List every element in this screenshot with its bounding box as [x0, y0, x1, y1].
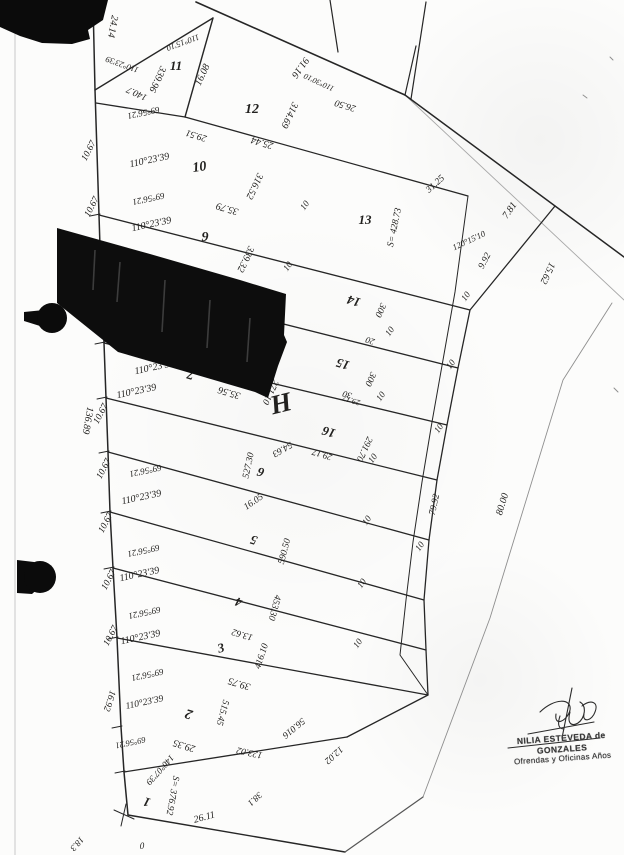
- dimension-label: 300: [362, 369, 378, 387]
- dimension-label: 69°56'21: [127, 543, 161, 560]
- dimension-label: S= 428.73: [386, 207, 404, 248]
- dimension-label: 69°56'21: [127, 105, 161, 122]
- dimension-label: 10.67: [102, 623, 121, 648]
- dimension-label: 527.30: [241, 452, 256, 480]
- dimension-label: 24.14: [105, 14, 120, 38]
- dimension-label: 110°30'10: [302, 71, 335, 93]
- dimension-label: 10: [383, 324, 397, 338]
- lot-3-label: 3: [215, 639, 227, 656]
- boundary-line: [117, 638, 428, 695]
- lot-1-label: 1: [141, 794, 152, 810]
- plat-drawing: 24.14110°23'39339.96110°15'1016.08140.79…: [0, 0, 624, 855]
- dimension-label: 15.62: [538, 261, 557, 286]
- lot-10-label: 10: [192, 159, 208, 176]
- boundary-line: [405, 46, 416, 95]
- punch-hole: [24, 561, 56, 593]
- dimension-label: 80.00: [494, 492, 511, 517]
- dimension-label: 140.7: [124, 83, 149, 102]
- boundary-line: [196, 2, 405, 95]
- dimension-label: 10: [459, 289, 473, 303]
- boundary-line: [405, 95, 624, 300]
- lot-12-label: 12: [245, 102, 259, 117]
- dimension-label: 16.92: [101, 689, 117, 713]
- dimension-label: 13.62: [230, 626, 254, 642]
- dimension-label: 9.92: [477, 251, 494, 271]
- dimension-label: 120°15'10: [451, 228, 488, 252]
- dimension-label: 110°23'39: [103, 54, 139, 75]
- dimension-label: 7.81: [500, 200, 519, 221]
- dimension-label: 316.52: [243, 170, 265, 200]
- lot-11-label: 11: [170, 58, 182, 73]
- dimension-label: 18.3: [68, 835, 86, 854]
- dimension-label: 110°15'10: [164, 32, 200, 53]
- dimension-label: 123.02: [236, 744, 264, 759]
- boundary-line: [610, 57, 613, 60]
- dimension-label: 110°23'39: [120, 628, 162, 647]
- dimension-label: 110°23'39: [129, 151, 171, 170]
- dimension-label: 56.016: [280, 715, 307, 740]
- boundary-line: [583, 95, 587, 98]
- dimension-label: 10: [355, 576, 369, 590]
- dimension-label: 26.11: [192, 809, 216, 825]
- dimension-label: 339.32: [234, 243, 256, 273]
- dimension-label: 16.05: [242, 492, 265, 513]
- lot-13-label: 13: [359, 212, 373, 227]
- dimension-label: 69°56'21: [132, 191, 166, 208]
- dimension-label: 29.17: [311, 447, 334, 463]
- dimension-label: 136.89: [80, 406, 96, 435]
- dimension-label: 590.50: [277, 537, 293, 565]
- dimension-label: 10.67: [97, 510, 116, 535]
- dimension-label: 10.67: [95, 456, 114, 481]
- boundary-line: [400, 196, 468, 695]
- dimension-label: 39.75: [227, 675, 253, 692]
- boundary-line: [185, 117, 468, 196]
- dimension-label: 69°56'21: [128, 605, 162, 622]
- dimension-label: 69°56'21: [131, 667, 165, 684]
- dimension-label: 110°23'39: [119, 565, 161, 584]
- dimension-label: 26.50: [333, 97, 357, 113]
- dimension-label: 69°56'21: [115, 735, 147, 751]
- lot-14-label: 14: [345, 292, 362, 310]
- scan-corner-blob: [0, 0, 108, 44]
- dimension-label: 110°23'39: [121, 488, 163, 507]
- dimension-label: 110°23'39: [125, 693, 165, 712]
- dimension-label: 10: [374, 389, 388, 403]
- boundary-line: [128, 815, 345, 852]
- lot-15-label: 15: [334, 355, 351, 373]
- dimension-label: 314.69: [278, 99, 300, 129]
- dimension-label: 10: [298, 198, 312, 212]
- dimension-label: 10: [351, 636, 365, 650]
- block-H-label: H: [266, 386, 296, 421]
- boundary-line: [345, 797, 423, 852]
- dimension-label: 515.45: [214, 699, 230, 727]
- dimension-label: 12.02: [322, 744, 345, 766]
- dimension-label: 79.92: [428, 493, 442, 516]
- dimension-label: 10: [444, 357, 458, 371]
- dimension-label: 453.30: [266, 594, 282, 622]
- dimension-label: 69°56'21: [129, 463, 163, 480]
- dimension-label: 10: [413, 539, 427, 553]
- dimension-label: 10: [432, 421, 446, 435]
- dimension-label: S= 376.92: [164, 775, 181, 816]
- lot-2-label: 2: [183, 705, 195, 722]
- lot-16-label: 16: [320, 423, 337, 441]
- dimension-label: 110°23'39: [116, 382, 158, 401]
- boundary-line: [614, 388, 618, 392]
- boundary-line: [330, 0, 338, 52]
- punch-hole: [37, 303, 67, 333]
- dimension-label: 29.35: [172, 737, 197, 754]
- boundary-line: [411, 2, 426, 99]
- boundary-line: [347, 206, 555, 737]
- dimension-label: 300: [372, 300, 388, 318]
- dimension-label: 110°23'39: [131, 215, 173, 234]
- lot-9-label: 9: [202, 230, 209, 245]
- boundary-line: [423, 303, 612, 797]
- dimension-label: 10: [281, 259, 295, 273]
- scanned-survey-plat: 24.14110°23'39339.96110°15'1016.08140.79…: [0, 0, 624, 855]
- dimension-label: 35.79: [215, 200, 241, 217]
- lot-6-label: 6: [255, 464, 266, 480]
- dimension-label: 10.67: [100, 567, 119, 592]
- dimension-label: 29.51: [185, 127, 208, 143]
- dimension-label: 31.25: [424, 173, 448, 196]
- dimension-label: 16.08: [193, 62, 212, 87]
- dimension-label: 339.96: [146, 63, 168, 93]
- dimension-label: 20: [364, 335, 376, 347]
- lot-5-label: 5: [248, 532, 259, 548]
- dimension-label: 38.1: [246, 789, 265, 808]
- dimension-label: 25.44: [250, 134, 275, 151]
- dimension-label: 0: [140, 841, 145, 851]
